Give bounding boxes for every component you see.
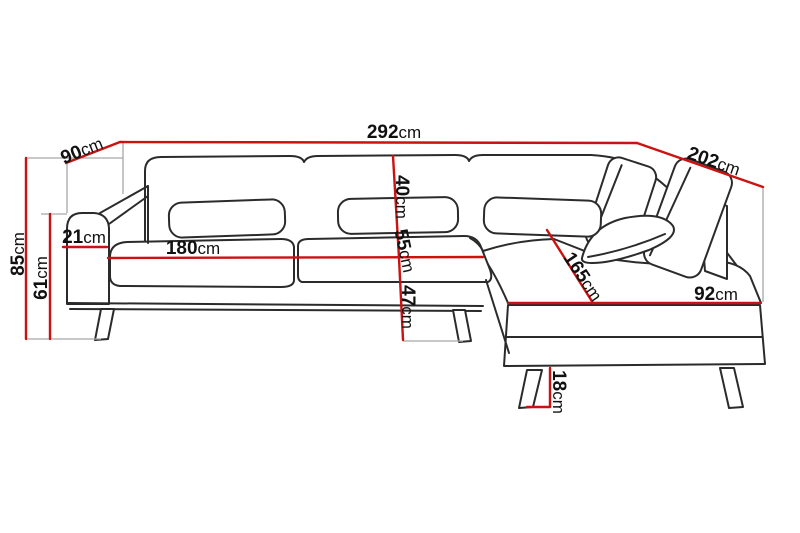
lumbar-pillow-left [168,199,285,238]
dim-line-seat-width [108,257,483,258]
dimension-label-armrest-width: 21cm [62,227,106,248]
leg-front-right [453,310,471,342]
dimension-label-seat-width: 180cm [166,238,220,259]
sofa-drawing [67,155,765,408]
leg-chaise-left [519,370,542,408]
armrest-top-edge-inner [109,196,148,224]
leg-front-left [95,309,114,340]
chaise-platform [504,305,765,366]
dimension-label-back-section-depth: 90cm [58,133,106,169]
lumbar-pillow-right [483,197,601,237]
leg-chaise-right [720,368,743,408]
dimension-label-backrest-height: 40cm [391,175,412,219]
diagram-canvas: 292cm 90cm 202cm 85cm 61cm 21cm 180cm 4 [0,0,800,533]
dimension-label-leg-height: 18cm [548,370,569,414]
armrest-top-edge-outer [100,186,148,213]
dimension-label-back-height: 85cm [8,232,29,276]
base-rail-bottom [70,309,481,311]
dimension-label-seat-height: 47cm [397,285,418,329]
dimension-label-chaise-width: 92cm [694,284,738,305]
base-rail-top [67,303,483,306]
dimension-label-armrest-height: 61cm [31,256,52,300]
sofa-dimension-diagram: 292cm 90cm 202cm 85cm 61cm 21cm 180cm 4 [0,0,800,533]
dimension-label-total-width: 292cm [367,122,421,143]
